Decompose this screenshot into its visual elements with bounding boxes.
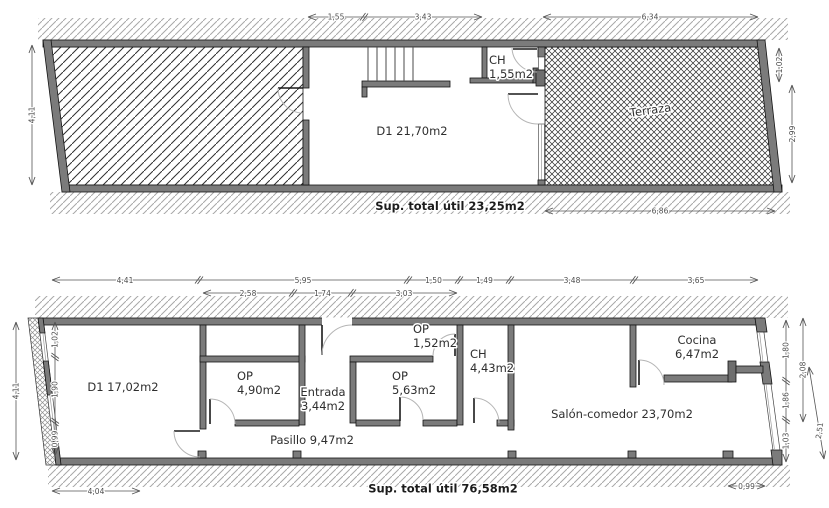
room-label-pasillo: Pasillo 9,47m2 xyxy=(270,433,354,447)
dim-value: 6,34 xyxy=(642,13,659,22)
room-label-op2-abbr: OP xyxy=(392,369,408,383)
op2-top-wall xyxy=(350,356,433,362)
lower-top-party-wall-hatch xyxy=(35,296,788,318)
ch-left-wall xyxy=(482,47,487,78)
terraza-wall-top xyxy=(538,47,545,57)
op2-door xyxy=(400,397,423,421)
room-label-entrada-name: Entrada xyxy=(300,385,345,399)
dim-value: 1,03 xyxy=(782,432,791,449)
dim-value: 0,99 xyxy=(738,482,755,491)
cocina-wall-connector xyxy=(736,366,763,373)
dim-value: 1,02 xyxy=(775,56,784,73)
room-label-d1-upper: D1 21,70m2 xyxy=(376,124,447,138)
d1-right-wall xyxy=(200,325,206,429)
dim-value: 3,48 xyxy=(564,276,581,285)
door-swing-arc xyxy=(210,399,235,424)
room-label-salon: Salón-comedor 23,70m2 xyxy=(551,407,693,421)
lower-total-area-label: Sup. total útil 76,58m2 xyxy=(368,482,518,496)
dim-value: 2,58 xyxy=(240,289,257,298)
cocina-left-wall xyxy=(630,325,636,387)
cocina-bottom-wall xyxy=(664,375,732,382)
dim-value: 4,41 xyxy=(117,276,134,285)
dim-value: 4,11 xyxy=(12,382,21,399)
dim-value: 3,65 xyxy=(688,276,705,285)
cocina-wall-step xyxy=(728,361,736,382)
salon-left-wall xyxy=(508,325,514,430)
dim-value: 1,74 xyxy=(314,289,331,298)
room-label-d1-lower: D1 17,02m2 xyxy=(87,380,158,394)
room-label-cocina-area: 6,47m2 xyxy=(675,347,719,361)
floor-plan-canvas: D1 21,70m2 CH 1,55m2 Terraza 1,55 3,43 6… xyxy=(0,0,829,508)
room-label-cocina-name: Cocina xyxy=(678,333,717,347)
room-label-op3-abbr: OP xyxy=(413,322,429,336)
terraza-window-upper xyxy=(539,57,545,70)
bottom-wall-pilaster xyxy=(723,451,733,458)
bottom-wall-pilaster xyxy=(628,451,636,458)
cocina-door xyxy=(639,360,664,385)
op1-door xyxy=(210,399,235,424)
entry-door xyxy=(322,325,352,355)
dim-value: 1,02 xyxy=(51,331,60,348)
bottom-wall-pilaster xyxy=(508,451,516,458)
dim-value: 1,90 xyxy=(51,381,60,398)
dim-value: 3,43 xyxy=(415,13,432,22)
dim-value: 2,08 xyxy=(799,361,808,378)
terraza-area xyxy=(545,47,774,185)
upper-floor-plan: D1 21,70m2 CH 1,55m2 Terraza 1,55 3,43 6… xyxy=(28,13,797,216)
dim-value: 2,99 xyxy=(788,125,797,142)
room-label-ch-upper-area: 1,55m2 xyxy=(489,67,533,81)
dim-value: 6,86 xyxy=(652,207,669,216)
door-swing-arc xyxy=(322,325,352,355)
op2-left-wall xyxy=(350,362,356,423)
room-label-op1-abbr: OP xyxy=(237,369,253,383)
room-label-op2-area: 5,63m2 xyxy=(392,383,436,397)
terraza-door xyxy=(508,94,538,124)
dim-value: 5,95 xyxy=(295,276,312,285)
terraza-door-jamb xyxy=(536,70,545,86)
ch-left-wall-lower xyxy=(457,325,463,425)
upper-d1-left-wall-upper xyxy=(303,47,309,88)
stair-wall-stub xyxy=(362,87,367,97)
upper-d1-left-wall-lower xyxy=(303,120,309,185)
door-swing-arc xyxy=(174,431,200,457)
door-swing-arc xyxy=(474,398,499,423)
stair-side-wall xyxy=(362,81,450,87)
lower-bottom-wall xyxy=(58,458,781,465)
d1-door xyxy=(174,431,200,457)
upper-hatched-area xyxy=(51,47,303,185)
room-label-op1-area: 4,90m2 xyxy=(237,383,281,397)
op1-bottom-wall xyxy=(235,420,299,426)
lower-floor-plan: D1 17,02m2 OP 4,90m2 Entrada 3,44m2 OP 5… xyxy=(12,276,826,496)
dim-value: 3,03 xyxy=(396,289,413,298)
room-label-entrada-area: 3,44m2 xyxy=(301,399,345,413)
door-swing-arc xyxy=(400,397,423,420)
upper-bottom-wall xyxy=(62,185,782,192)
bottom-wall-pilaster xyxy=(293,451,301,458)
upper-top-wall xyxy=(43,40,765,47)
dim-value: 1,80 xyxy=(782,342,791,359)
room-label-ch-lower-area: 4,43m2 xyxy=(470,361,514,375)
op2-bottom-wall-right xyxy=(423,420,457,426)
dim-value: 2,51 xyxy=(814,421,826,439)
dim-value: 1,50 xyxy=(425,276,442,285)
dim-value: 1,55 xyxy=(328,13,345,22)
terraza-wall-bottom xyxy=(538,180,545,185)
op2-bottom-wall-left xyxy=(356,420,400,426)
right-facade-pier-bottom xyxy=(771,450,782,465)
dim-value: 1,49 xyxy=(476,276,493,285)
dim-value: 4,04 xyxy=(88,487,105,496)
room-label-ch-upper-abbr: CH xyxy=(489,53,506,67)
upper-top-party-wall-hatch xyxy=(38,18,788,40)
dim-value: 4,11 xyxy=(28,106,37,123)
dim-line-right-diagonal xyxy=(809,367,824,459)
dim-value: 1,86 xyxy=(782,392,791,409)
room-label-ch-lower-abbr: CH xyxy=(470,347,487,361)
door-swing-arc xyxy=(639,360,664,385)
right-facade-pier-top xyxy=(755,318,767,332)
op1-top-wall xyxy=(200,356,305,362)
upper-total-area-label: Sup. total útil 23,25m2 xyxy=(375,199,525,213)
entry-opening xyxy=(322,318,352,327)
door-swing-arc xyxy=(508,94,538,124)
right-facade-band xyxy=(755,318,782,465)
dim-value: 0,99 xyxy=(51,430,60,447)
ch-lower-door xyxy=(474,398,499,423)
staircase xyxy=(368,47,413,81)
room-label-op3-area: 1,52m2 xyxy=(413,336,457,350)
lower-top-wall xyxy=(40,318,763,325)
